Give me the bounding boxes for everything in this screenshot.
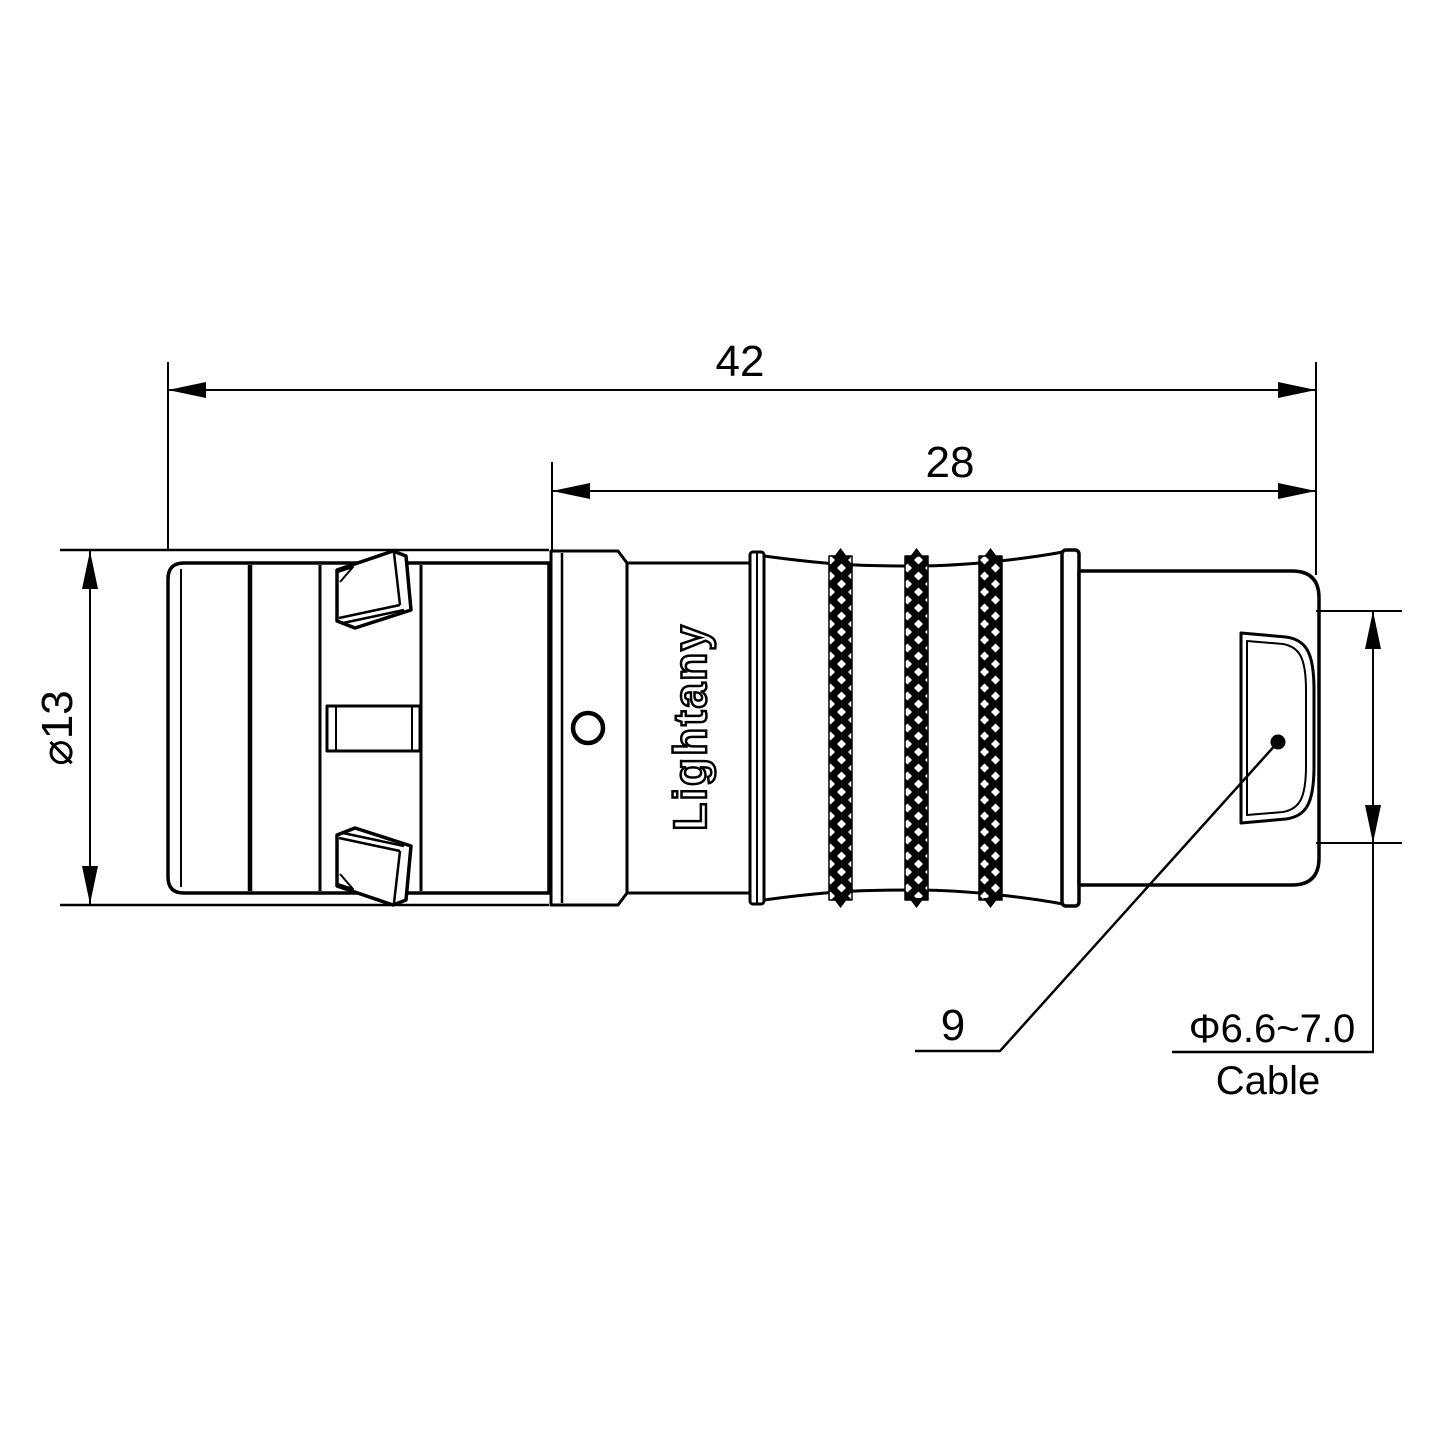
- knurled-ring-2: [905, 548, 928, 908]
- collar: [551, 551, 627, 905]
- diameter-13-label: ⌀13: [33, 690, 82, 765]
- connector-body: [168, 548, 1319, 908]
- flange: [750, 552, 764, 904]
- nut-size-label: 9: [941, 1001, 965, 1050]
- dimension-28-label: 28: [926, 438, 975, 487]
- back-ring: [1062, 550, 1079, 906]
- knurled-ring-1: [829, 548, 852, 908]
- barrel-engraving-text: Lightany: [664, 623, 716, 831]
- dimension-42-label: 42: [716, 337, 765, 386]
- technical-drawing-canvas: Lightany ⌀13: [0, 0, 1440, 1440]
- connector-side-view-drawing: Lightany ⌀13: [0, 0, 1440, 1440]
- knurled-ring-3: [979, 548, 1002, 908]
- cable-spec-label: Φ6.6~7.0: [1189, 1007, 1355, 1051]
- key-hole: [573, 713, 603, 743]
- dimension-42: [168, 362, 1316, 575]
- cable-word-label: Cable: [1216, 1059, 1321, 1103]
- cable-boot: [1241, 633, 1314, 823]
